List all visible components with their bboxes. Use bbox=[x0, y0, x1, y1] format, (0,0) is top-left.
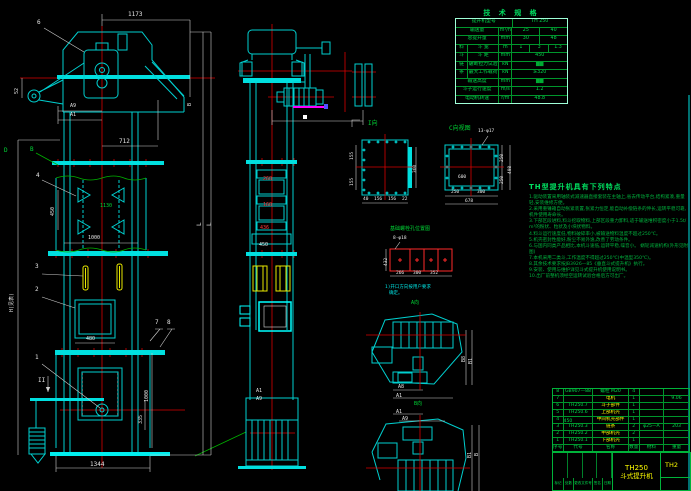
dim-22: 22 bbox=[402, 198, 407, 203]
table-cell: 450 bbox=[511, 53, 567, 61]
table-row: 输送高度mm▇▇ bbox=[456, 78, 567, 87]
chain-and-buckets bbox=[83, 264, 290, 291]
table-cell: r/m bbox=[498, 96, 511, 104]
dim-b: B bbox=[188, 103, 193, 106]
note-opening-1: 1)开口方向按用户要求 bbox=[385, 286, 431, 291]
title-block: 标记处数更改文件号签名日期 TH250 斗式提升机 TH2 bbox=[552, 452, 691, 491]
dim-a1-side: A1 bbox=[256, 389, 262, 394]
table-row: 料斗 宽m131.3 bbox=[456, 44, 567, 53]
dim-40: 40 bbox=[363, 198, 368, 203]
table-cell: 斗 宽 bbox=[467, 45, 498, 53]
dim-a1: A1 bbox=[70, 113, 76, 118]
table-row: 5TH250.6上部机壳1 bbox=[553, 409, 689, 416]
section-c-view bbox=[445, 145, 498, 190]
table-cell: 更改文件号 bbox=[573, 478, 592, 490]
table-cell: ≥320 bbox=[511, 70, 567, 78]
detail-title-anchor-bolts: 基础螺栓孔位置图 bbox=[390, 227, 430, 232]
table-cell: 签名 bbox=[592, 478, 602, 490]
dim-432: 432 bbox=[385, 258, 390, 266]
table-row: 提升机型号TH 250 bbox=[456, 19, 567, 27]
table-cell: 3 bbox=[529, 45, 548, 53]
dim-l1: L bbox=[197, 222, 203, 226]
table-cell: 条 bbox=[456, 70, 467, 78]
table-row: 7电机19.06 bbox=[553, 395, 689, 402]
side-view-extras bbox=[264, 104, 363, 327]
table-cell: kN bbox=[498, 62, 511, 70]
table-cell: 斗 距 bbox=[467, 53, 498, 61]
table-cell: 序号 bbox=[553, 445, 563, 451]
dim-a9-plan2: A9 bbox=[402, 417, 408, 422]
balloon-7: 7 bbox=[155, 320, 159, 326]
view-title-b: B向 bbox=[414, 402, 422, 407]
table-cell: 48.8 bbox=[511, 96, 567, 104]
table-row: 总提升量mm3048 bbox=[456, 35, 567, 44]
side-view-geometry bbox=[238, 30, 372, 469]
table-row: 3TH250.3链条2φ25—A203 bbox=[553, 423, 689, 430]
table-cell: m bbox=[498, 45, 511, 53]
title-block-fields: 标记处数更改文件号签名日期 bbox=[553, 478, 612, 490]
callout-8-holes: 8-φ18 bbox=[393, 237, 407, 242]
cad-drawing-canvas[interactable]: 1173712A9A152B6432178IIBD113045010004801… bbox=[0, 0, 691, 491]
table-cell: 处数 bbox=[563, 478, 573, 490]
table-cell: m/s bbox=[498, 87, 511, 95]
dim-156b: 156 bbox=[388, 198, 396, 203]
table-cell: 斗子运行速度 bbox=[456, 87, 498, 95]
table-cell: mm bbox=[498, 53, 511, 61]
dim-160: 160 bbox=[263, 203, 272, 208]
revision-cell bbox=[597, 453, 612, 478]
selection-grip[interactable] bbox=[303, 115, 307, 119]
view-title-c: C向视图 bbox=[449, 126, 471, 132]
dim-155b: 155 bbox=[351, 178, 356, 186]
head-plan-view-top bbox=[372, 314, 462, 384]
table-row: 斗斗 距mm450 bbox=[456, 52, 567, 61]
osnap-marker bbox=[324, 104, 328, 109]
revision-cell bbox=[553, 453, 568, 478]
product-name: 斗式提升机 bbox=[620, 472, 653, 480]
table-cell: ▇▇ bbox=[511, 79, 567, 87]
dim-b-plan2: B bbox=[475, 453, 480, 456]
table-cell: 代号 bbox=[563, 445, 593, 451]
dim-300b: 300 bbox=[413, 272, 421, 277]
dim-480: 480 bbox=[86, 337, 95, 342]
table-row: 2TH250.2中部机壳2 bbox=[553, 430, 689, 437]
anchor-bolt-detail bbox=[390, 249, 452, 271]
table-cell: mm bbox=[498, 36, 511, 44]
dim-360: 360 bbox=[414, 165, 419, 173]
table-row: 电动机转速r/m48.8 bbox=[456, 95, 567, 104]
table-row: 1TH250.1下部机壳1 bbox=[553, 437, 689, 444]
table-cell: 输送量 bbox=[456, 28, 498, 36]
table-cell: 料 bbox=[456, 45, 467, 53]
table-cell: 1.2 bbox=[511, 87, 567, 95]
spec-table-title: 技 术 规 格 bbox=[455, 8, 568, 18]
notes-title: TH型提升机具有下列特点 bbox=[529, 182, 690, 192]
section-i-view bbox=[362, 140, 412, 195]
table-row: 输送量m³/h2540 bbox=[456, 27, 567, 36]
table-cell: ▇▇ bbox=[511, 62, 567, 70]
dim-335: 335 bbox=[139, 415, 144, 424]
dim-1344: 1344 bbox=[90, 462, 104, 468]
table-row: 标记处数更改文件号签名日期 bbox=[553, 478, 612, 490]
note-line: 2.采用重锤箱自动张紧装置,张紧力恒定,能自动补偿链条的伸长,运转平稳可靠,机件… bbox=[529, 207, 690, 219]
section-mark-ii: II bbox=[38, 378, 45, 384]
table-cell: 名称 bbox=[592, 445, 627, 451]
table-cell: 40 bbox=[539, 28, 567, 36]
table-cell: 1 bbox=[511, 45, 529, 53]
table-row: 链破断拉力试验kN▇▇ bbox=[456, 61, 567, 70]
section-letter-d: D bbox=[4, 148, 8, 154]
dim-156a: 156 bbox=[374, 198, 382, 203]
table-cell: 48 bbox=[539, 36, 567, 44]
view-title-a: A向 bbox=[411, 301, 419, 306]
left-view-dimension-lines bbox=[18, 14, 360, 472]
table-cell: 数量 bbox=[628, 445, 639, 451]
callout-13-holes: 13-φ17 bbox=[478, 130, 494, 135]
title-block-revision-zone: 标记处数更改文件号签名日期 bbox=[553, 453, 613, 490]
dim-155a: 155 bbox=[351, 152, 356, 160]
title-block-sub-row bbox=[661, 477, 690, 490]
revision-cell bbox=[583, 453, 598, 478]
table-cell: TH 250 bbox=[512, 19, 568, 27]
table-cell: 破断拉力试验 bbox=[467, 62, 498, 70]
revision-cell bbox=[568, 453, 583, 478]
table-cell: 链 bbox=[456, 62, 467, 70]
note-line: 1.驱动装置采用轴装式减速器直接套装在主轴上,省去传动平台,结构紧凑,重量轻,安… bbox=[529, 195, 690, 207]
table-cell: 总提升量 bbox=[456, 36, 498, 44]
dim-b1-plan: B1 bbox=[469, 358, 474, 364]
note-line: 6.与国内同类产品相比,本机斗速低,运转平稳,噪音小。 蜗轮减速机构(外形见附图… bbox=[529, 244, 690, 256]
dim-b1-plan2: B1 bbox=[468, 452, 473, 458]
spec-table: 提升机型号TH 250输送量m³/h2540总提升量mm3048料斗 宽m131… bbox=[455, 18, 568, 104]
dim-b8-plan: B8 bbox=[462, 356, 467, 362]
dim-260: 260 bbox=[263, 177, 272, 182]
left-view-green-marks bbox=[36, 153, 246, 456]
dim-450: 450 bbox=[51, 207, 56, 216]
dim-250b: 250 bbox=[501, 154, 506, 162]
table-row: 序号代号名称数量材料重量 bbox=[553, 444, 689, 451]
balloon-4: 4 bbox=[36, 173, 40, 179]
table-cell: 斗 bbox=[456, 53, 467, 61]
balloon-2: 2 bbox=[35, 287, 39, 293]
bom-table: 8GB907—88螺栓 M2047电机19.066TH250.7斗子部件15TH… bbox=[552, 388, 690, 452]
title-block-product: TH250 斗式提升机 bbox=[613, 453, 661, 490]
revision-grid bbox=[553, 453, 612, 478]
dim-52: 52 bbox=[15, 88, 20, 94]
dim-a8-plan: A8 bbox=[398, 385, 404, 390]
head-plan-top-dims bbox=[366, 312, 472, 398]
dim-250c: 250 bbox=[501, 176, 506, 184]
dim-712: 712 bbox=[119, 139, 130, 145]
view-title-i: I向 bbox=[368, 121, 378, 127]
dim-1130: 1130 bbox=[100, 204, 112, 209]
note-opening-2: 确定。 bbox=[389, 292, 403, 297]
dim-a1-plan: A1 bbox=[396, 394, 402, 399]
table-cell: 25 bbox=[511, 28, 539, 36]
dim-h: H(见表) bbox=[10, 293, 15, 312]
notes-block: TH型提升机具有下列特点 1.驱动装置采用轴装式减速器直接套装在主轴上,省去传动… bbox=[529, 182, 690, 280]
dim-678: 678 bbox=[465, 200, 473, 205]
table-cell: 1.3 bbox=[548, 45, 567, 53]
table-cell: 重量 bbox=[663, 445, 689, 451]
table-row: 4TH250.4-450中间机壳部件1 bbox=[553, 416, 689, 423]
notes-list: 1.驱动装置采用轴装式减速器直接套装在主轴上,省去传动平台,结构紧凑,重量轻,安… bbox=[529, 195, 690, 280]
dim-l2: L bbox=[207, 222, 213, 226]
left-view-geometry bbox=[28, 32, 190, 463]
dim-266: 266 bbox=[396, 272, 404, 277]
dim-436: 436 bbox=[260, 226, 269, 231]
table-row: 条最大工作载荷kN≥320 bbox=[456, 69, 567, 78]
table-row: 斗子运行速度m/s1.2 bbox=[456, 86, 567, 95]
table-cell: 材料 bbox=[639, 445, 663, 451]
table-cell: mm bbox=[498, 79, 511, 87]
balloon-3: 3 bbox=[35, 264, 39, 270]
table-cell: m³/h bbox=[498, 28, 511, 36]
title-block-number-zone: TH2 bbox=[661, 453, 690, 490]
dim-352: 352 bbox=[430, 272, 438, 277]
drawing-number: TH2 bbox=[661, 453, 690, 477]
dim-300a: 300 bbox=[477, 191, 485, 196]
section-letter-b: B bbox=[30, 147, 34, 153]
dim-1000: 1000 bbox=[88, 236, 100, 241]
table-cell: 提升机型号 bbox=[456, 19, 512, 27]
dim-1173: 1173 bbox=[128, 12, 142, 18]
dim-a9: A9 bbox=[70, 104, 76, 109]
note-line: 10.出厂前整机须经空运转试验合格后方可出厂。 bbox=[529, 274, 690, 280]
table-cell: kN bbox=[498, 70, 511, 78]
dim-498: 498 bbox=[509, 166, 514, 174]
head-plan-view-bottom bbox=[372, 419, 466, 491]
balloon-8: 8 bbox=[167, 320, 171, 326]
dim-250a: 250 bbox=[451, 191, 459, 196]
dim-600: 600 bbox=[458, 176, 466, 181]
product-model: TH250 bbox=[625, 464, 648, 472]
dim-1000-right: 1000 bbox=[145, 390, 150, 402]
table-cell: 电动机转速 bbox=[456, 96, 498, 104]
table-cell: 标记 bbox=[553, 478, 563, 490]
dim-a9-side: A9 bbox=[256, 397, 262, 402]
note-line: 3.下部区段进料,料斗挖取物料,上部区段重力卸料,适于输送堆积密度小于1.5t/… bbox=[529, 219, 690, 231]
table-cell: 最大工作载荷 bbox=[467, 70, 498, 78]
table-row: 6TH250.7斗子部件1 bbox=[553, 402, 689, 409]
dim-450-side: 450 bbox=[259, 243, 268, 248]
table-cell: 30 bbox=[511, 36, 539, 44]
balloon-1: 1 bbox=[35, 355, 39, 361]
table-cell: 日期 bbox=[602, 478, 612, 490]
dim-a1-plan2: A1 bbox=[396, 410, 402, 415]
table-cell: 输送高度 bbox=[456, 79, 498, 87]
balloon-6: 6 bbox=[37, 20, 41, 26]
